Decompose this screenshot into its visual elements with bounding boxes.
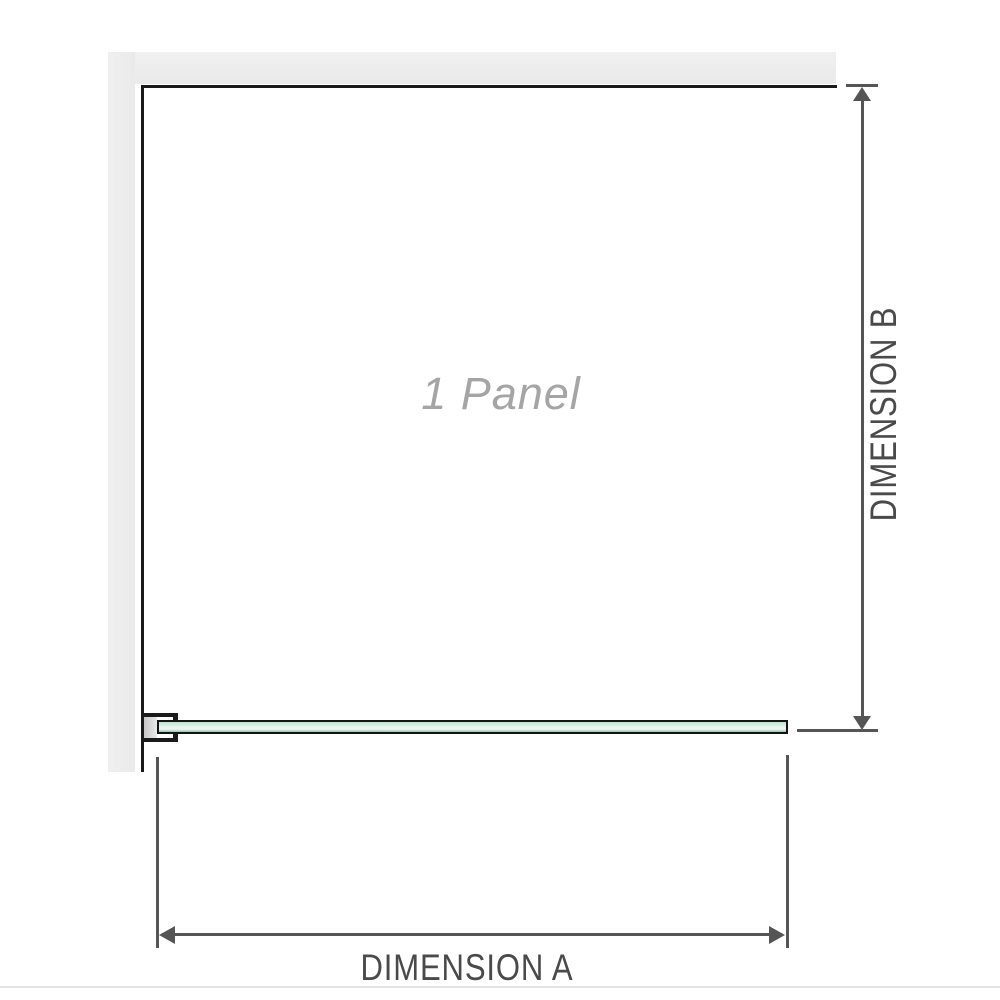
wall-top-strip (108, 52, 836, 84)
dimension-a-arrow-left-icon (159, 926, 175, 944)
dimension-a-line (162, 933, 782, 936)
dimension-b-arrow-down-icon (853, 716, 871, 730)
wall-left-strip (108, 52, 135, 772)
panel-dimension-diagram: 1 Panel DIMENSION B DIMENSION A (0, 0, 1000, 1000)
glass-panel-bar (157, 720, 788, 734)
wall-face-top-line (141, 85, 837, 88)
bottom-divider-line (0, 986, 1000, 988)
bracket-shadow (144, 717, 157, 738)
dimension-a-arrow-right-icon (769, 926, 785, 944)
dimension-b-label: DIMENSION B (863, 307, 905, 522)
dimension-a-label: DIMENSION A (360, 949, 573, 986)
dimension-b-arrow-up-icon (853, 87, 871, 101)
wall-face-left-line (141, 85, 144, 772)
dimension-a-left-tick (156, 757, 159, 948)
dimension-a-right-tick (786, 755, 789, 948)
panel-count-label: 1 Panel (421, 368, 581, 420)
